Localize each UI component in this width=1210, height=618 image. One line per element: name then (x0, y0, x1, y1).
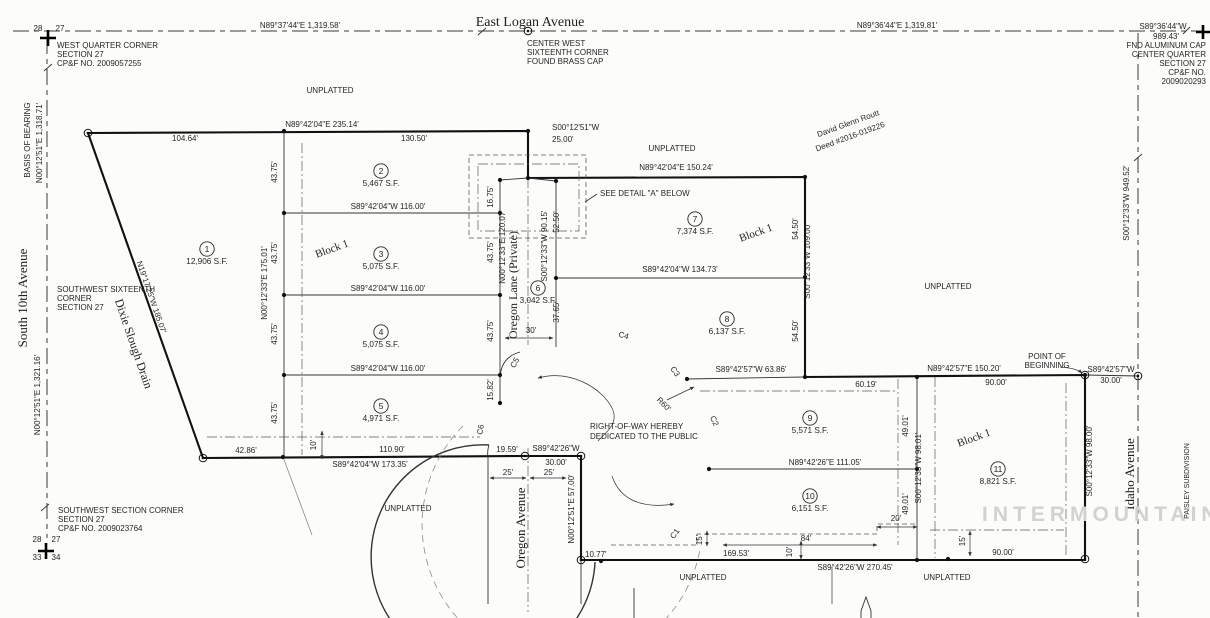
label-28: 28 (33, 535, 42, 544)
west-quarter-corner-note: WEST QUARTER CORNER (57, 41, 158, 50)
lot-number: 2 (379, 166, 384, 176)
label-10: 10' (785, 546, 794, 557)
label-dedicated-to-the-public: DEDICATED TO THE PUBLIC (590, 432, 698, 441)
label-10-77: 10.77' (585, 550, 607, 559)
label-s89-42-26-w-270-45: S89°42'26"W 270.45' (817, 563, 893, 572)
label-s89-42-26-w: S89°42'26"W (532, 444, 580, 453)
lot-8-label: 86,137 S.F. (709, 312, 746, 336)
detail-a-leader (585, 194, 597, 202)
label-sixteenth-corner: SIXTEENTH CORNER (527, 48, 609, 57)
corner-dot (498, 401, 502, 405)
lot-number: 7 (693, 214, 698, 224)
found-monument-dot (202, 457, 205, 460)
label-cp-f-no-2009057255: CP&F NO. 2009057255 (57, 59, 142, 68)
label-43-75: 43.75' (270, 323, 279, 345)
lot-number: 5 (379, 401, 384, 411)
label-84: 84' (801, 534, 812, 543)
label-27: 27 (52, 535, 61, 544)
idaho-avenue-label: Idaho Avenue (1122, 438, 1137, 510)
found-monument-dot (524, 455, 527, 458)
label-s89-42-04-w-116-00: S89°42'04"W 116.00' (351, 202, 426, 211)
label-30-00: 30.00' (545, 458, 567, 467)
label-s89-42-04-w-116-00: S89°42'04"W 116.00' (351, 364, 426, 373)
label-30-00: 30.00' (1100, 376, 1122, 385)
block-1-label-mid: Block 1 (738, 222, 775, 245)
lots-layer: 112,906 S.F.25,467 S.F.35,075 S.F.45,075… (186, 164, 1016, 513)
label-25: 25' (503, 468, 514, 477)
corner-dot (526, 176, 530, 180)
found-monument-dot (1137, 375, 1140, 378)
lot-7-label: 77,374 S.F. (677, 212, 714, 236)
lot-area: 5,467 S.F. (363, 179, 400, 188)
label-n00-12-33-e-175-01: N00°12'33"E 175.01' (260, 246, 269, 320)
label-s00-12-33-w-98-00: S00°12'33"W 98.00' (1085, 425, 1094, 496)
label-42-86: 42.86' (235, 446, 257, 455)
unplatted-label-5: UNPLATTED (924, 573, 971, 582)
label-n00-12-51-e-57-00: N00°12'51"E 57.00' (567, 474, 576, 544)
corner-dot (554, 276, 558, 280)
right-of-way-note: RIGHT-OF-WAY HEREBY (590, 422, 684, 431)
south-10th-avenue-label: South 10th Avenue (15, 248, 30, 347)
corner-dot (282, 373, 286, 377)
lot-2-label: 25,467 S.F. (363, 164, 400, 188)
plat-drawing: 2827WEST QUARTER CORNERSECTION 27CP&F NO… (0, 0, 1210, 618)
label-cp-f-no-2009023764: CP&F NO. 2009023764 (58, 524, 143, 533)
cul-de-sac (371, 352, 700, 618)
label-section-27: SECTION 27 (58, 515, 105, 524)
lot-number: 11 (994, 464, 1003, 474)
label-n89-42-57-e-150-20: N89°42'57"E 150.20' (927, 364, 1001, 373)
label-found-brass-cap: FOUND BRASS CAP (527, 57, 603, 66)
basis-of-bearing-label: BASIS OF BEARING (23, 102, 32, 177)
curve-c1-label: C1 (668, 526, 682, 540)
section-corner-monuments (38, 25, 1210, 559)
bearing-top-west: N89°37'44"E 1,319.58' (260, 21, 341, 30)
label-60-19: 60.19' (855, 380, 877, 389)
drain-continuation (283, 457, 312, 535)
lot-6-label: 63,042 S.F. (520, 281, 557, 305)
radius-leader (667, 387, 694, 400)
corner-dot (685, 377, 689, 381)
corner-dot (281, 455, 285, 459)
lot-area: 5,075 S.F. (363, 262, 400, 271)
oregon-avenue-label: Oregon Avenue (513, 487, 528, 568)
lot-area: 5,571 S.F. (792, 426, 829, 435)
label-52-50: 52.50' (552, 211, 561, 233)
label-n89-42-04-e-235-14: N89°42'04"E 235.14' (285, 120, 359, 129)
unplatted-label-6: UNPLATTED (385, 504, 432, 513)
unplatted-label-3: UNPLATTED (925, 282, 972, 291)
label-169-53: 169.53' (723, 549, 749, 558)
labels-layer: 2827WEST QUARTER CORNERSECTION 27CP&F NO… (15, 15, 1210, 582)
corner-dot (526, 129, 530, 133)
section-lines (13, 27, 1203, 618)
label-10: 10' (309, 439, 318, 450)
curve-c6-label: C6 (475, 423, 486, 435)
curve-c4-label: C4 (618, 330, 631, 341)
lot-5-label: 54,971 S.F. (363, 399, 400, 423)
see-detail-note: SEE DETAIL "A" BELOW (600, 189, 690, 198)
found-monument-dot (580, 455, 583, 458)
label-n00-12-51-e-1-321-16: N00°12'51"E 1,321.16' (33, 354, 42, 435)
lot-number: 9 (808, 413, 813, 423)
curve-c5-label: C5 (508, 356, 521, 370)
lot-number: 4 (379, 327, 384, 337)
label-54-50: 54.50' (791, 218, 800, 240)
line-break-mark (44, 64, 52, 71)
lot-area: 12,906 S.F. (186, 257, 227, 266)
label-section-27: SECTION 27 (57, 303, 104, 312)
southwest-sixteenth-corner-note: SOUTHWEST SIXTEENTH (57, 285, 155, 294)
label-989-43: 989.43' (1153, 32, 1179, 41)
corner-dot (282, 129, 286, 133)
unplatted-label-2: UNPLATTED (649, 144, 696, 153)
label-n89-42-26-e-111-05: N89°42'26"E 111.05' (789, 458, 862, 467)
lot-line (687, 377, 805, 379)
cul-de-sac-arc (371, 445, 595, 618)
corner-dot (498, 178, 502, 182)
corner-dot (599, 559, 603, 563)
label-n89-42-04-e-150-24: N89°42'04"E 150.24' (639, 163, 713, 172)
southwest-section-corner-note: SOUTHWEST SECTION CORNER (58, 506, 184, 515)
label-20: 20' (891, 514, 902, 523)
lot-4-label: 45,075 S.F. (363, 325, 400, 349)
label-54-50: 54.50' (791, 320, 800, 342)
section-27-label: 27 (56, 24, 65, 33)
subdivision-boundary (88, 131, 1085, 560)
corner-dot (915, 375, 919, 379)
bearing-top-east: N89°36'44"E 1,319.81' (857, 21, 938, 30)
corner-dot (498, 293, 502, 297)
label-90-00: 90.00' (992, 548, 1014, 557)
lot-area: 8,821 S.F. (980, 477, 1017, 486)
corner-dot (282, 211, 286, 215)
label-s89-42-04-w-134-73: S89°42'04"W 134.73' (642, 265, 718, 274)
label-beginning: BEGINNING (1025, 361, 1070, 370)
section-28-label: 28 (34, 24, 43, 33)
line-break-mark (41, 504, 49, 511)
center-quarter-corner-cross (1196, 25, 1210, 39)
watermark-intermountain: INTERMOUNTAIN (982, 503, 1210, 526)
label-n19-17-25-w-185-07: N19°17'25"W 185.07' (135, 260, 168, 335)
lot-11-label: 118,821 S.F. (980, 462, 1017, 486)
corner-dot (707, 467, 711, 471)
plat-sheet: 2827WEST QUARTER CORNERSECTION 27CP&F NO… (0, 0, 1210, 618)
label-15: 15' (695, 534, 704, 545)
label-15: 15' (958, 535, 967, 546)
label-s89-42-04-w-173-35: S89°42'04"W 173.35' (332, 460, 408, 469)
lot-number: 1 (205, 244, 210, 254)
lot-10-label: 106,151 S.F. (792, 489, 829, 513)
label-cp-f-no: CP&F NO. (1168, 68, 1206, 77)
bottom-stubs (634, 567, 871, 618)
label-104-64: 104.64' (172, 134, 198, 143)
lot-1-label: 112,906 S.F. (186, 242, 227, 266)
corner-dot (915, 558, 919, 562)
found-monument-dot (1084, 558, 1087, 561)
lot-9-label: 95,571 S.F. (792, 411, 829, 435)
row-leader-lower (612, 476, 674, 505)
lot-area: 4,971 S.F. (363, 414, 400, 423)
label-130-50: 130.50' (401, 134, 427, 143)
label-33: 33 (33, 553, 42, 562)
corner-dot (554, 179, 558, 183)
lot10-easement-steps (611, 524, 917, 545)
label-s00-12-33-w-109-00: S00°12'33"W 109.00' (803, 223, 812, 299)
label-43-75: 43.75' (486, 320, 495, 342)
label-43-75: 43.75' (270, 161, 279, 183)
lot-area: 6,137 S.F. (709, 327, 746, 336)
row-easement-arc (422, 426, 700, 618)
label-49-01: 49.01' (901, 415, 910, 437)
lot-area: 7,374 S.F. (677, 227, 714, 236)
label-25-00: 25.00' (552, 135, 574, 144)
label-110-90: 110.90' (379, 445, 405, 454)
label-s00-12-33-w-98-01: S00°12'33"W 98.01' (914, 432, 923, 503)
label-16-75: 16.75' (486, 186, 495, 208)
lot-area: 5,075 S.F. (363, 340, 400, 349)
label-center-quarter: CENTER QUARTER (1132, 50, 1206, 59)
label-34: 34 (52, 553, 61, 562)
corner-dot (282, 293, 286, 297)
label-25: 25' (544, 468, 555, 477)
label-30: 30' (526, 326, 537, 335)
found-monument-dot (87, 132, 90, 135)
label-19-59: 19.59' (496, 445, 518, 454)
east-logan-avenue-label: East Logan Avenue (476, 15, 585, 30)
label-s00-12-33-w-949-52: S00°12'33"W 949.52' (1122, 165, 1131, 241)
block-1-label-west: Block 1 (314, 238, 351, 261)
label-s89-42-57-w-63-86: S89°42'57"W 63.86' (716, 365, 787, 374)
label-90-00: 90.00' (985, 378, 1007, 387)
corner-dot (946, 557, 950, 561)
lot-number: 3 (379, 249, 384, 259)
point-of-beginning-label: POINT OF (1028, 352, 1066, 361)
center-quarter-corner-note: FND ALUMINUM CAP (1126, 41, 1206, 50)
label-n00-12-51-e-1-318-71: N00°12'51"E 1,318.71' (35, 102, 44, 183)
lot-area: 3,042 S.F. (520, 296, 557, 305)
label-s00-12-33-w-90-15: S00°12'33"W 90.15' (540, 210, 549, 281)
found-monument-dot (1084, 374, 1087, 377)
unplatted-label-1: UNPLATTED (307, 86, 354, 95)
north-arrow-icon (861, 597, 871, 618)
curve-c3-label: C3 (668, 365, 682, 379)
label-s89-42-04-w-116-00: S89°42'04"W 116.00' (351, 284, 426, 293)
label-2009020293: 2009020293 (1162, 77, 1207, 86)
block-1-label-east: Block 1 (956, 427, 993, 450)
center-west-sixteenth-note: CENTER WEST (527, 39, 585, 48)
label-43-75: 43.75' (270, 242, 279, 264)
lot-number: 6 (536, 283, 541, 293)
label-49-01: 49.01' (901, 493, 910, 515)
label-s89-36-44-w: S89°36'44"W (1139, 22, 1187, 31)
found-monument-dot (527, 30, 530, 33)
lot-area: 6,151 S.F. (792, 504, 829, 513)
curve-c2-label: C2 (708, 414, 721, 428)
label-section-27: SECTION 27 (1159, 59, 1206, 68)
lot-number: 10 (805, 491, 815, 501)
oregon-lane-label: Oregon Lane (Private) (506, 231, 520, 339)
label-s89-42-57-w: S89°42'57"W (1087, 365, 1135, 374)
label-15-82: 15.82' (486, 379, 495, 401)
lot-3-label: 35,075 S.F. (363, 247, 400, 271)
label-corner: CORNER (57, 294, 92, 303)
corner-dot (498, 373, 502, 377)
label-section-27: SECTION 27 (57, 50, 104, 59)
dixie-slough-drain-label: Dixie Slough Drain (112, 297, 156, 390)
label-s00-12-51-w: S00°12'51"W (552, 123, 600, 132)
found-monument-dot (580, 559, 583, 562)
unplatted-label-4: UNPLATTED (680, 573, 727, 582)
lot-number: 8 (725, 314, 730, 324)
label-43-75: 43.75' (270, 402, 279, 424)
corner-dot (803, 375, 807, 379)
corner-dot (803, 175, 807, 179)
label-43-75: 43.75' (486, 241, 495, 263)
